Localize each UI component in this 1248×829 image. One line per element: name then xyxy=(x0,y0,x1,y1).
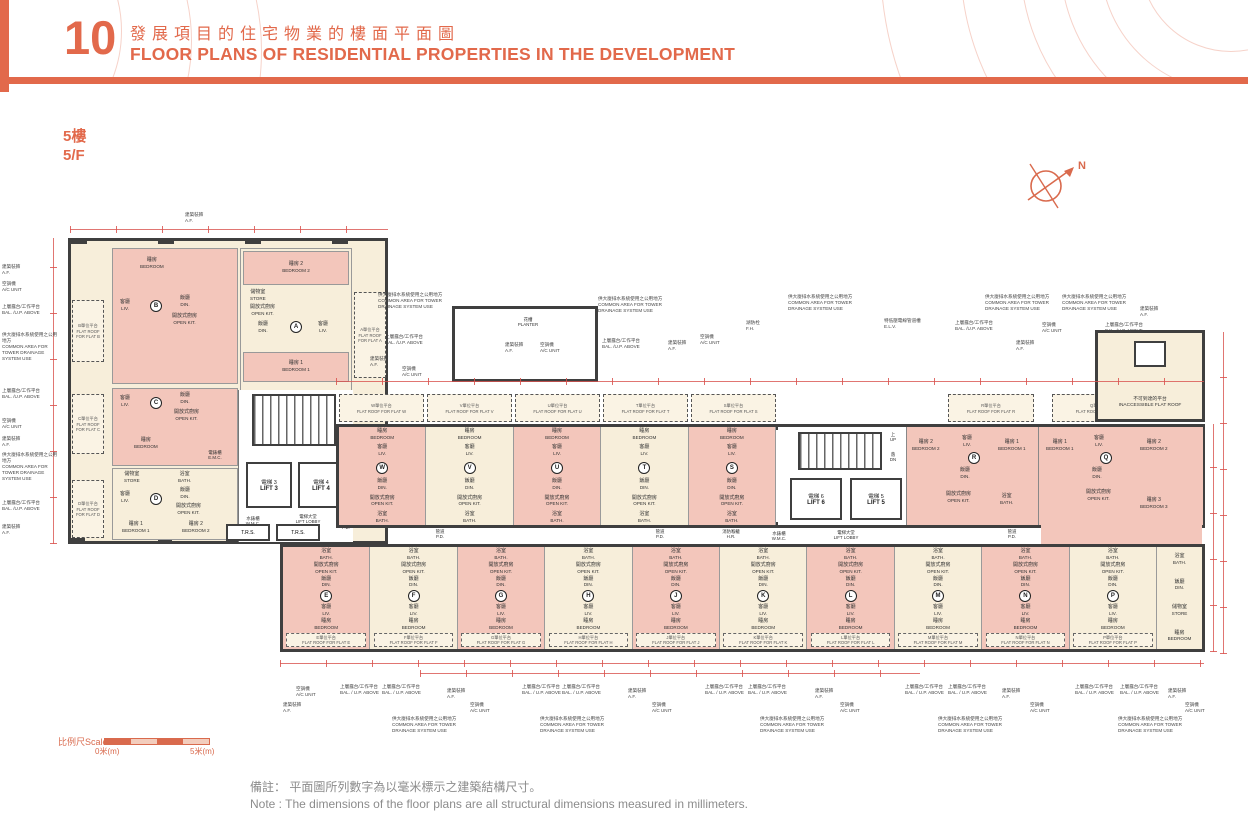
room-label-bath: 浴室BATH. xyxy=(550,512,563,523)
annotation-callout: 建築裝飾A.F. xyxy=(628,688,692,700)
unit-cell: 浴室BATH. 開放式廚房OPEN KIT. 飯廳DIN. F 客廳LIV. 睡… xyxy=(370,547,457,649)
floor-label-zh: 5樓 xyxy=(63,128,86,147)
lift-6: 電梯 6LIFT 6 xyxy=(790,478,842,520)
annotation-callout: 供大廈排水系統使用之公用地方COMMON AREA FOR TOWER DRAI… xyxy=(760,716,844,734)
scale-zero-label: 0米(m) xyxy=(95,746,119,757)
annotation-callout: 湖防栓F.H. xyxy=(746,320,810,332)
annotation-callout: 建築裝飾A.F. xyxy=(2,524,58,536)
unit-letter-q: Q xyxy=(1100,452,1112,464)
annotation-callout: 上層露台/工作平台BAL. / U.P. ABOVE xyxy=(562,684,602,696)
annotation-callout: 建築裝飾A.F. xyxy=(1140,306,1204,318)
flat-roof-box: W單位平台FLAT ROOF FOR FLAT W xyxy=(339,394,424,422)
annotation-callout: 供大廈排水系統使用之公用地方COMMON AREA FOR TOWER DRAI… xyxy=(1118,716,1202,734)
unit-cell: 浴室BATH. 開放式廚房OPEN KIT. 飯廳DIN. J 客廳LIV. 睡… xyxy=(633,547,720,649)
room-label-dining: 飯廳DIN. xyxy=(465,479,475,490)
room-label-bath: 浴室BATH. xyxy=(1173,554,1186,565)
flat-roof-b: B單位平台FLAT ROOF FOR FLAT B xyxy=(72,300,104,362)
unit-letter: J xyxy=(670,590,682,602)
up-label: 上UP xyxy=(884,432,902,443)
unit-letter-a: A xyxy=(290,321,302,333)
room-label-bath: 浴室BATH. xyxy=(1019,549,1032,560)
annotation-callout: 建築裝飾A.F. xyxy=(2,436,58,448)
unit-letter: G xyxy=(495,590,507,602)
room-label-store: 儲物室STORE xyxy=(1172,605,1188,616)
annotation-callout: 上層露台/工作平台BAL. /U.P. ABOVE xyxy=(385,334,431,346)
room-label-living: 客廳LIV. xyxy=(1094,436,1104,447)
room-label-bath: 浴室BATH. xyxy=(844,549,857,560)
room-label-bedroom: 睡房BEDROOM xyxy=(633,429,657,440)
pd-label: 管道P.D. xyxy=(648,529,672,540)
room-label-bath: 浴室BATH. xyxy=(494,549,507,560)
annotation-callout: 空調機A/C UNIT xyxy=(2,418,58,430)
dimension-line xyxy=(1220,332,1227,654)
annotation-callout: 供大廈排水系統使用之公用地方COMMON AREA FOR TOWER DRAI… xyxy=(985,294,1067,312)
room-label-living: 客廳LIV. xyxy=(552,445,562,456)
room-label-dining: 飯廳DIN. xyxy=(377,479,387,490)
room-label-dining: 飯廳DIN. xyxy=(639,479,649,490)
room-label-bedroom: 睡房BEDROOM xyxy=(1014,619,1038,630)
annotation-callout: 建築裝飾A.F. xyxy=(1016,340,1080,352)
room-label-dining: 飯廳DIN. xyxy=(258,322,268,333)
room-label-open-kitchen: 開放式廚房OPEN KIT. xyxy=(838,563,863,574)
flat-roof-strip: L單位平台FLAT ROOF FOR FLAT L xyxy=(811,633,890,647)
room-label-living: 客廳LIV. xyxy=(120,300,130,311)
flat-roof-strip: G單位平台FLAT ROOF FOR FLAT G xyxy=(461,633,540,647)
pd-label: 管道P.D. xyxy=(1000,529,1024,540)
unit-cell: 浴室BATH. 開放式廚房OPEN KIT. 飯廳DIN. M 客廳LIV. 睡… xyxy=(895,547,982,649)
annotation-callout: 供大廈排水系統使用之公用地方COMMON AREA FOR TOWER DRAI… xyxy=(392,716,476,734)
annotation-callout: 供大廈排水系統使用之公用地方COMMON AREA FOR TOWER DRAI… xyxy=(2,452,60,482)
annotation-callout: 上層露台/工作平台BAL. / U.P. ABOVE xyxy=(748,684,788,696)
flat-roof-strip: E單位平台FLAT ROOF FOR FLAT E xyxy=(286,633,365,647)
annotation-callout: 空調機A/C UNIT xyxy=(700,334,764,346)
unit-letter: F xyxy=(408,590,420,602)
annotation-callout: 上層露台/工作平台BAL. /U.P. ABOVE xyxy=(955,320,1001,332)
page-title-en: FLOOR PLANS OF RESIDENTIAL PROPERTIES IN… xyxy=(130,44,735,65)
unit-letter-d: D xyxy=(150,493,162,505)
room-label-open-kitchen: 開放式廚房OPEN KIT. xyxy=(401,563,426,574)
annotation-callout: 建築裝飾A.F. xyxy=(2,264,58,276)
room-label-open-kitchen: 開放式廚房OPEN KIT. xyxy=(457,496,482,507)
annotation-callout: 上層露台/工作平台BAL. / U.P. ABOVE xyxy=(1075,684,1115,696)
dimension-line xyxy=(336,378,1204,385)
room-label-open-kitchen: 開放式廚房OPEN KIT. xyxy=(172,314,197,325)
room-label-store: 儲物室STORE xyxy=(124,472,140,483)
unit-a-bedroom2: 睡房 2BEDROOM 2 xyxy=(243,251,349,285)
room-label-living: 客廳LIV. xyxy=(1108,605,1118,616)
room-label-open-kitchen: 開放式廚房OPEN KIT. xyxy=(545,496,570,507)
flat-roof-box: S單位平台FLAT ROOF FOR FLAT S xyxy=(691,394,776,422)
room-label-bath: 浴室BATH. xyxy=(1106,549,1119,560)
room-label-bedroom: 睡房BEDROOM xyxy=(1168,631,1192,642)
room-label-open-kitchen: 開放式廚房OPEN KIT. xyxy=(1086,490,1111,501)
room-label-open-kitchen: 開放式廚房OPEN KIT. xyxy=(946,492,971,503)
room-label-bath: 浴室BATH. xyxy=(376,512,389,523)
room-label-bedroom: 睡房BEDROOM xyxy=(134,438,158,449)
room-label-bedroom: 睡房BEDROOM xyxy=(140,258,164,269)
unit-letter: H xyxy=(582,590,594,602)
page-title-zh: 發展項目的住宅物業的樓面平面圖 xyxy=(130,20,460,44)
top-row-units: 睡房BEDROOM 客廳LIV. W 飯廳DIN. 開放式廚房OPEN KIT.… xyxy=(339,427,776,525)
unit-cell: 睡房BEDROOM 客廳LIV. S 飯廳DIN. 開放式廚房OPEN KIT.… xyxy=(689,427,776,525)
top-row-flat-roofs: W單位平台FLAT ROOF FOR FLAT W V單位平台FLAT ROOF… xyxy=(339,394,776,422)
staircase xyxy=(798,432,882,470)
annotation-callout: 空調機A/C UNIT xyxy=(1042,322,1106,334)
unit-letter: N xyxy=(1019,590,1031,602)
room-label-bedroom: 睡房BEDROOM xyxy=(664,619,688,630)
annotation-callout: 空調機A/C UNIT xyxy=(1185,702,1248,714)
room-label-bedroom: 睡房BEDROOM xyxy=(545,429,569,440)
room-label-living: 客廳LIV. xyxy=(1020,605,1030,616)
room-label-open-kitchen: 開放式廚房OPEN KIT. xyxy=(314,563,339,574)
annotation-callout: 上層露台/工作平台BAL. / U.P. ABOVE xyxy=(1120,684,1160,696)
room-label-open-kitchen: 開放式廚房OPEN KIT. xyxy=(663,563,688,574)
unit-letter: M xyxy=(932,590,944,602)
room-label-open-kitchen: 開放式廚房OPEN KIT. xyxy=(370,496,395,507)
room-label-open-kitchen: 開放式廚房OPEN KIT. xyxy=(632,496,657,507)
scale-bar xyxy=(104,738,210,745)
header-left-strip xyxy=(0,0,9,92)
room-label-bath: 浴室BATH. xyxy=(463,512,476,523)
room-label-bath: 浴室BATH. xyxy=(638,512,651,523)
annotation-callout: 建築裝飾A.F. xyxy=(283,702,347,714)
room-label-living: 客廳LIV. xyxy=(409,605,419,616)
annotation-callout: 上層露台/工作平台BAL. / U.P. ABOVE xyxy=(522,684,562,696)
dimension-line xyxy=(420,670,920,677)
unit-letter-r: R xyxy=(968,452,980,464)
unit-letter: S xyxy=(726,462,738,474)
room-label-bath: 浴室BATH. xyxy=(725,512,738,523)
unit-cell: 浴室BATH. 開放式廚房OPEN KIT. 飯廳DIN. E 客廳LIV. 睡… xyxy=(283,547,370,649)
flat-roof-strip: K單位平台FLAT ROOF FOR FLAT K xyxy=(723,633,802,647)
unit-letter-c: C xyxy=(150,397,162,409)
room-label-open-kitchen: 開放式廚房OPEN KIT. xyxy=(719,496,744,507)
room-label-dining: 飯廳DIN. xyxy=(180,296,190,307)
annotation-callout: 上層露台/工作平台BAL. / U.P. ABOVE xyxy=(705,684,745,696)
bottom-row-units: 浴室BATH. 開放式廚房OPEN KIT. 飯廳DIN. E 客廳LIV. 睡… xyxy=(283,547,1157,649)
north-label: N xyxy=(1078,160,1086,172)
room-label-bedroom1: 睡房 1BEDROOM 1 xyxy=(998,440,1026,451)
room-label-bedroom: 睡房BEDROOM xyxy=(489,619,513,630)
room-label-open-kitchen: 開放式廚房OPEN KIT. xyxy=(489,563,514,574)
annotation-callout: 供大廈排水系統使用之公用地方COMMON AREA FOR TOWER DRAI… xyxy=(938,716,1022,734)
room-label-bedroom: 睡房BEDROOM xyxy=(751,619,775,630)
pd-label: 管道P.D. xyxy=(428,529,452,540)
flat-roof-strip: J單位平台FLAT ROOF FOR FLAT J xyxy=(636,633,715,647)
room-label-dining: 飯廳DIN. xyxy=(933,577,943,588)
unit-a-bedroom1: 睡房 1BEDROOM 1 xyxy=(243,352,349,382)
room-label-store: 儲物室STORE xyxy=(250,290,266,301)
annotation-callout: 空調機A/C UNIT xyxy=(1030,702,1094,714)
room-label-dining: 飯廳DIN. xyxy=(1174,580,1184,591)
roof-feature xyxy=(1134,341,1166,367)
wmc-label: 水錶櫃W.M.C. xyxy=(764,531,794,542)
room-label-open-kitchen: 開放式廚房OPEN KIT. xyxy=(1013,563,1038,574)
brochure-page: 10 發展項目的住宅物業的樓面平面圖 FLOOR PLANS OF RESIDE… xyxy=(0,0,1248,829)
room-label-dining: 飯廳DIN. xyxy=(758,577,768,588)
unit-cell: 浴室BATH. 開放式廚房OPEN KIT. 飯廳DIN. L 客廳LIV. 睡… xyxy=(807,547,894,649)
annotation-callout: 空調機A/C UNIT xyxy=(470,702,534,714)
unit-letter: P xyxy=(1107,590,1119,602)
lift-lobby-label: 電梯大堂LIFT LOBBY xyxy=(818,530,874,541)
unit-letter: W xyxy=(376,462,388,474)
room-label-bath: 浴室BATH. xyxy=(178,472,191,483)
lift-3: 電梯 3LIFT 3 xyxy=(246,462,292,508)
annotation-callout: 上層露台/工作平台BAL. / U.P. ABOVE xyxy=(905,684,945,696)
flat-roof-strip: M單位平台FLAT ROOF FOR FLAT M xyxy=(898,633,977,647)
room-label-living: 客廳LIV. xyxy=(583,605,593,616)
room-label-dining: 飯廳DIN. xyxy=(960,468,970,479)
emc-label: 電錶櫃E.M.C. xyxy=(200,450,230,461)
room-label-open-kitchen: 開放式廚房OPEN KIT. xyxy=(926,563,951,574)
room-label-dining: 飯廳DIN. xyxy=(180,488,190,499)
room-label-open-kitchen: 開放式廚房OPEN KIT. xyxy=(576,563,601,574)
room-label-living: 客廳LIV. xyxy=(120,492,130,503)
flat-roof-box: T單位平台FLAT ROOF FOR FLAT T xyxy=(603,394,688,422)
lift-5: 電梯 5LIFT 5 xyxy=(850,478,902,520)
annotation-callout: 空調機A/C UNIT xyxy=(652,702,716,714)
unit-letter: L xyxy=(845,590,857,602)
unit-cell: 浴室BATH. 開放式廚房OPEN KIT. 飯廳DIN. P 客廳LIV. 睡… xyxy=(1070,547,1157,649)
annotation-callout: 建築裝飾A.F. xyxy=(447,688,511,700)
annotation-callout: 特低壓電線管道槽E.L.V. xyxy=(884,318,954,330)
annotation-callout: 上層露台/工作平台BAL. /U.P. ABOVE xyxy=(2,304,58,316)
annotation-callout: 上層露台/工作平台BAL. /U.P. ABOVE xyxy=(2,500,58,512)
unit-cell: 浴室BATH. 開放式廚房OPEN KIT. 飯廳DIN. G 客廳LIV. 睡… xyxy=(458,547,545,649)
room-label-bath: 浴室BATH. xyxy=(931,549,944,560)
room-label-bedroom: 睡房BEDROOM xyxy=(402,619,426,630)
flat-roof-c: C單位平台FLAT ROOF FOR FLAT C xyxy=(72,394,104,454)
annotation-callout: 供大廈排水系統使用之公用地方COMMON AREA FOR TOWER DRAI… xyxy=(1062,294,1144,312)
unit-letter: V xyxy=(464,462,476,474)
annotation-callout: 上層露台/工作平台BAL. / U.P. ABOVE xyxy=(382,684,422,696)
header-accent-bar xyxy=(0,77,1248,84)
annotation-callout: 空調機A/C UNIT xyxy=(402,366,466,378)
unit-letter: U xyxy=(551,462,563,474)
room-label-living: 客廳LIV. xyxy=(321,605,331,616)
room-label-bedroom: 睡房BEDROOM xyxy=(577,619,601,630)
annotation-callout: 上層露台/工作平台BAL. /U.P. ABOVE xyxy=(1105,322,1151,334)
flat-roof-box: V單位平台FLAT ROOF FOR FLAT V xyxy=(427,394,512,422)
room-label-bedroom: 睡房BEDROOM xyxy=(839,619,863,630)
unit-letter-b: B xyxy=(150,300,162,312)
room-label-bedroom2: 睡房 2BEDROOM 2 xyxy=(912,440,940,451)
unit-cell: 浴室BATH. 開放式廚房OPEN KIT. 飯廳DIN. K 客廳LIV. 睡… xyxy=(720,547,807,649)
room-label-living: 客廳LIV. xyxy=(120,396,130,407)
section-number: 10 xyxy=(64,14,116,61)
room-label-living: 客廳LIV. xyxy=(933,605,943,616)
annotation-callout: 建築裝飾A.F. xyxy=(1168,688,1232,700)
room-label-living: 客廳LIV. xyxy=(962,436,972,447)
staircase xyxy=(252,394,336,446)
inaccessible-flat-roof: 不可到達的平台INACCESSIBLE FLAT ROOF xyxy=(1095,330,1205,422)
unit-q-extension xyxy=(1041,525,1202,544)
unit-cell: 浴室BATH. 開放式廚房OPEN KIT. 飯廳DIN. N 客廳LIV. 睡… xyxy=(982,547,1069,649)
trs-room: T.R.S. xyxy=(276,524,320,541)
annotation-callout: 供大廈排水系統使用之公用地方COMMON AREA FOR TOWER DRAI… xyxy=(378,292,460,310)
room-label-living: 客廳LIV. xyxy=(846,605,856,616)
room-label-living: 客廳LIV. xyxy=(671,605,681,616)
room-label-dining: 飯廳DIN. xyxy=(1020,577,1030,588)
room-label-open-kitchen: 開放式廚房OPEN KIT. xyxy=(751,563,776,574)
room-label-bath: 浴室BATH. xyxy=(669,549,682,560)
room-label-dining: 飯廳DIN. xyxy=(1092,468,1102,479)
annotation-callout: 上層露台/工作平台BAL. /U.P. ABOVE xyxy=(602,338,648,350)
room-label-living: 客廳LIV. xyxy=(465,445,475,456)
annotation-callout: 供大廈排水系統使用之公用地方COMMON AREA FOR TOWER DRAI… xyxy=(2,332,60,362)
room-label-dining: 飯廳DIN. xyxy=(496,577,506,588)
room-label-bedroom: 睡房BEDROOM xyxy=(1101,619,1125,630)
flat-roof-d: D單位平台FLAT ROOF FOR FLAT D xyxy=(72,480,104,538)
down-label: 落DN xyxy=(884,452,902,463)
annotation-callout: 上層露台/工作平台BAL. /U.P. ABOVE xyxy=(2,388,58,400)
unit-cell: 睡房BEDROOM 客廳LIV. V 飯廳DIN. 開放式廚房OPEN KIT.… xyxy=(426,427,513,525)
annotation-callout: 建築裝飾A.F. xyxy=(815,688,879,700)
room-label-bath: 浴室BATH. xyxy=(757,549,770,560)
room-label-bedroom: 睡房BEDROOM xyxy=(314,619,338,630)
unit-p-end-rooms: 浴室BATH. 飯廳DIN. 儲物室STORE 睡房BEDROOM xyxy=(1157,547,1202,649)
unit-letter: E xyxy=(320,590,332,602)
room-label-living: 客廳LIV. xyxy=(377,445,387,456)
room-label-bath: 浴室BATH. xyxy=(1000,494,1013,505)
annotation-callout: 建築裝飾A.F. xyxy=(1002,688,1066,700)
room-label-open-kitchen: 開放式廚房OPEN KIT. xyxy=(176,504,201,515)
flat-roof-strip: F單位平台FLAT ROOF FOR FLAT F xyxy=(374,633,453,647)
room-label-dining: 飯廳DIN. xyxy=(552,479,562,490)
room-label-bedroom: 睡房BEDROOM xyxy=(370,429,394,440)
room-label-dining: 飯廳DIN. xyxy=(583,577,593,588)
flat-roof-strip: P單位平台FLAT ROOF FOR FLAT P xyxy=(1073,633,1152,647)
page-header: 10 發展項目的住宅物業的樓面平面圖 FLOOR PLANS OF RESIDE… xyxy=(0,0,1248,84)
annotation-callout: 上層露台/工作平台BAL. / U.P. ABOVE xyxy=(340,684,380,696)
note-zh: 備註： 平面圖所列數字為以毫米標示之建築結構尺寸。 xyxy=(250,778,541,795)
room-label-bath: 浴室BATH. xyxy=(407,549,420,560)
annotation-callout: 建築裝飾A.F. xyxy=(185,212,249,224)
unit-cell: 睡房BEDROOM 客廳LIV. T 飯廳DIN. 開放式廚房OPEN KIT.… xyxy=(601,427,688,525)
room-label-living: 客廳LIV. xyxy=(727,445,737,456)
scale-five-label: 5米(m) xyxy=(190,746,214,757)
annotation-callout: 上層露台/工作平台BAL. / U.P. ABOVE xyxy=(948,684,988,696)
unit-letter: T xyxy=(638,462,650,474)
annotation-callout: 空調機A/C UNIT xyxy=(2,281,58,293)
room-label-dining: 飯廳DIN. xyxy=(1108,577,1118,588)
trs-room: T.R.S. xyxy=(226,524,270,541)
flat-roof-strip: N單位平台FLAT ROOF FOR FLAT N xyxy=(986,633,1065,647)
lift-lobby-label: 電梯大堂LIFT LOBBY xyxy=(280,514,336,525)
room-label-living: 客廳LIV. xyxy=(318,322,328,333)
floor-label: 5樓 5/F xyxy=(63,128,86,166)
hr-label: 消防喉轆H.R. xyxy=(714,529,748,540)
room-label-bedroom: 睡房BEDROOM xyxy=(926,619,950,630)
annotation-callout: 供大廈排水系統使用之公用地方COMMON AREA FOR TOWER DRAI… xyxy=(788,294,870,312)
room-label-bedroom1: 睡房 1BEDROOM 1 xyxy=(122,522,150,533)
unit-cell: 睡房BEDROOM 客廳LIV. U 飯廳DIN. 開放式廚房OPEN KIT.… xyxy=(514,427,601,525)
room-label-dining: 飯廳DIN. xyxy=(671,577,681,588)
room-label-dining: 飯廳DIN. xyxy=(321,577,331,588)
room-label-bath: 浴室BATH. xyxy=(320,549,333,560)
room-label-bath: 浴室BATH. xyxy=(582,549,595,560)
room-label-bedroom: 睡房BEDROOM xyxy=(458,429,482,440)
annotation-callout: 空調機A/C UNIT xyxy=(540,342,604,354)
dimension-line xyxy=(1210,424,1217,652)
dimension-line xyxy=(70,226,388,233)
unit-cell: 浴室BATH. 開放式廚房OPEN KIT. 飯廳DIN. H 客廳LIV. 睡… xyxy=(545,547,632,649)
annotation-callout: 供大廈排水系統使用之公用地方COMMON AREA FOR TOWER DRAI… xyxy=(540,716,624,734)
room-label-dining: 飯廳DIN. xyxy=(409,577,419,588)
floor-label-en: 5/F xyxy=(63,147,86,166)
room-label-dining: 飯廳DIN. xyxy=(846,577,856,588)
room-label-bedroom2: 睡房 2BEDROOM 2 xyxy=(182,522,210,533)
room-label-bedroom1: 睡房 1BEDROOM 1 xyxy=(1046,440,1074,451)
unit-letter: K xyxy=(757,590,769,602)
room-label-bedroom3: 睡房 3BEDROOM 3 xyxy=(1140,498,1168,509)
room-label-bedroom2: 睡房 2BEDROOM 2 xyxy=(1140,440,1168,451)
room-label-dining: 飯廳DIN. xyxy=(727,479,737,490)
room-label-bedroom: 睡房BEDROOM xyxy=(720,429,744,440)
annotation-callout: 供大廈排水系統使用之公用地方COMMON AREA FOR TOWER DRAI… xyxy=(598,296,680,314)
room-label-open-kitchen: 開放式廚房OPEN KIT. xyxy=(174,410,199,421)
annotation-callout: 空調機A/C UNIT xyxy=(840,702,904,714)
note-en: Note : The dimensions of the floor plans… xyxy=(250,797,748,811)
flat-roof-box: U單位平台FLAT ROOF FOR FLAT U xyxy=(515,394,600,422)
room-label-open-kitchen: 開放式廚房OPEN KIT. xyxy=(250,305,275,316)
room-label-living: 客廳LIV. xyxy=(758,605,768,616)
dimension-line xyxy=(280,660,1204,667)
room-label-living: 客廳LIV. xyxy=(496,605,506,616)
room-label-living: 客廳LIV. xyxy=(639,445,649,456)
flat-roof-strip: H單位平台FLAT ROOF FOR FLAT H xyxy=(549,633,628,647)
room-label-dining: 飯廳DIN. xyxy=(180,393,190,404)
unit-cell: 睡房BEDROOM 客廳LIV. W 飯廳DIN. 開放式廚房OPEN KIT.… xyxy=(339,427,426,525)
flat-roof-r: R單位平台FLAT ROOF FOR FLAT R xyxy=(948,394,1034,422)
decorative-arc xyxy=(880,0,1248,84)
room-label-open-kitchen: 開放式廚房OPEN KIT. xyxy=(1100,563,1125,574)
